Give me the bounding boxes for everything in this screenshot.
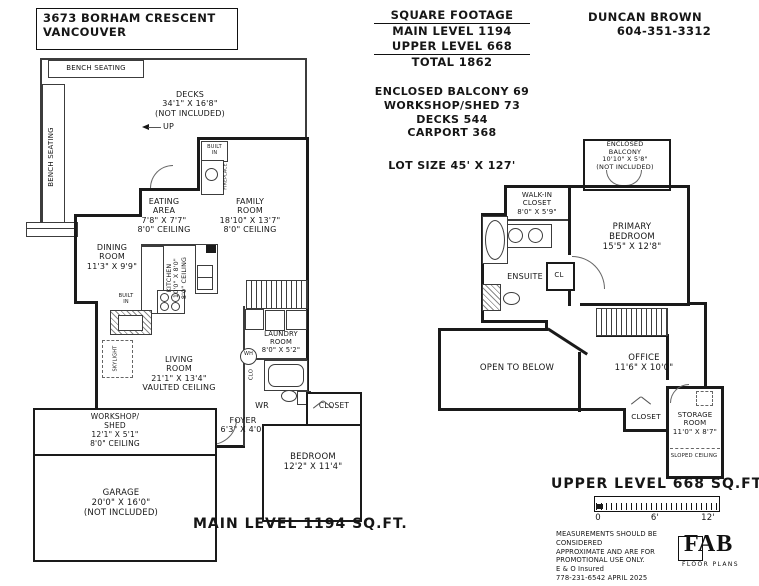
fab-logo-text: FAB — [684, 531, 733, 558]
washer — [265, 310, 285, 331]
wall-segment — [481, 320, 547, 323]
cabinet-box — [696, 391, 713, 406]
skylight-label: SKYLIGHT — [114, 343, 121, 375]
room-label-enclosed-balcony: ENCLOSED BALCONY 10'10" X 5'8" (NOT INCL… — [585, 141, 665, 172]
room-label-laundry-room: LAUNDRY ROOM 8'0" X 5'2" — [250, 330, 312, 354]
water-heater-label: WH — [240, 352, 257, 358]
sloped-ceiling-label: SLOPED CEILING — [668, 453, 720, 459]
room-label-decks: DECKS 34'1" X 16'8" (NOT INCLUDED) — [150, 90, 230, 118]
room-label-kitchen: KITCHEN 10'0" X 8'0" 8'0" CEILING — [166, 246, 190, 310]
wall-segment — [197, 137, 200, 191]
address-line2: VANCOUVER — [43, 25, 231, 39]
room-label-primary-bedroom: PRIMARY BEDROOM 15'5" X 12'8" — [586, 222, 678, 252]
kitchen-sink — [197, 277, 213, 290]
room-label-family-room: FAMILY ROOM 18'10" X 13'7" 8'0" CEILING — [208, 197, 292, 235]
wall-segment — [547, 327, 588, 355]
vanity-sink — [508, 228, 523, 243]
wall-segment — [74, 214, 77, 304]
extra-area-line: DECKS 544 — [356, 113, 548, 127]
bifold-door — [631, 396, 641, 404]
disclaimer-line: 778-231-6542 APRIL 2025 — [556, 574, 676, 583]
wall-segment — [197, 137, 309, 140]
wall-segment — [568, 290, 571, 306]
bathtub-upper-inner — [485, 220, 505, 260]
shower — [482, 284, 501, 311]
wall-segment — [578, 352, 581, 412]
room-label-storage-room: STORAGE ROOM 11'0" X 8'7" — [668, 411, 722, 436]
closet-clo-label: CLO — [249, 367, 256, 383]
room-label-workshop: WORKSHOP/ SHED 12'1" X 5'1" 8'0" CEILING — [40, 413, 190, 448]
stairs-up-label: UP — [163, 122, 183, 131]
wall-segment — [704, 302, 707, 389]
disclaimer-block: MEASUREMENTS SHOULD BE CONSIDERED APPROX… — [556, 530, 676, 583]
door-arc — [572, 256, 605, 289]
room-label-office: OFFICE 11'6" X 10'0" — [600, 353, 688, 373]
agent-name: DUNCAN BROWN — [563, 10, 727, 24]
wall-segment — [504, 219, 570, 221]
vanity-sink — [528, 228, 543, 243]
address-line1: 3673 BORHAM CRESCENT — [43, 11, 231, 25]
room-label-garage: GARAGE 20'0" X 16'0" (NOT INCLUDED) — [46, 488, 196, 518]
wall-segment — [305, 58, 307, 140]
room-label-wr: WR — [250, 401, 274, 410]
scale-label-0: 0 — [592, 513, 604, 523]
up-arrow-line — [148, 127, 161, 128]
square-footage-block: SQUARE FOOTAGE MAIN LEVEL 1194 UPPER LEV… — [374, 8, 530, 70]
extra-area-line: WORKSHOP/SHED 73 — [356, 99, 548, 113]
room-label-walk-in-closet: WALK-IN CLOSET 8'0" X 5'9" — [506, 191, 568, 216]
agent-phone: 604-351-3312 — [601, 24, 727, 38]
room-label-dining-room: DINING ROOM 11'3" X 9'9" — [80, 243, 144, 271]
room-label-open-to-below: OPEN TO BELOW — [452, 363, 582, 373]
bedroom-box — [262, 424, 362, 522]
bathtub-main-inner — [268, 364, 304, 387]
extra-areas-block: ENCLOSED BALCONY 69 WORKSHOP/SHED 73 DEC… — [356, 85, 548, 140]
sloped-ceiling-line — [670, 448, 720, 450]
room-label-ensuite: ENSUITE — [502, 272, 548, 281]
room-label-cl: CL — [548, 271, 570, 279]
built-in-fireplace-label: BUILT IN — [201, 144, 228, 156]
scale-ticks — [596, 503, 717, 510]
fireplace-flue — [205, 168, 218, 181]
main-level-label: MAIN LEVEL 1194 SQ.FT. — [193, 516, 383, 532]
wall-segment — [623, 429, 669, 432]
wall-segment — [580, 303, 690, 306]
disclaimer-line: E & O Insured — [556, 565, 676, 574]
wall-segment — [568, 185, 690, 188]
contact-block: DUNCAN BROWN 604-351-3312 — [563, 10, 727, 39]
wall-segment — [26, 228, 76, 229]
toilet-main — [281, 390, 297, 402]
bifold-door — [641, 396, 651, 404]
wall-segment — [568, 185, 571, 255]
toilet-upper — [503, 292, 520, 305]
wall-segment — [438, 408, 626, 411]
room-label-living-room: LIVING ROOM 21'1" X 13'4" VAULTED CEILIN… — [138, 355, 220, 393]
fireplace-label: FIREPLACE — [224, 159, 231, 195]
room-label-eating-area: EATING AREA 7'8" X 7'7" 8'0" CEILING — [130, 197, 198, 235]
upper-level-label: UPPER LEVEL 668 SQ.FT. — [551, 476, 759, 492]
disclaimer-line: APPROXIMATE AND ARE FOR — [556, 548, 676, 557]
disclaimer-line: MEASUREMENTS SHOULD BE CONSIDERED — [556, 530, 676, 548]
dryer — [286, 310, 307, 330]
lot-size: LOT SIZE 45' X 127' — [356, 159, 548, 173]
fridge — [206, 245, 216, 253]
wall-segment — [438, 328, 548, 331]
laundry-sink — [245, 309, 264, 330]
upper-level-sqft: UPPER LEVEL 668 — [374, 39, 530, 55]
scale-label-6: 6' — [648, 513, 662, 523]
wall-segment — [139, 188, 200, 191]
wall-segment — [687, 185, 690, 305]
extra-area-line: CARPORT 368 — [356, 126, 548, 140]
stairs-upper — [596, 308, 668, 336]
door-arc — [150, 165, 173, 188]
wall-segment — [95, 301, 98, 411]
total-sqft: TOTAL 1862 — [374, 55, 530, 69]
wall-segment — [504, 185, 570, 188]
stairs-main — [246, 280, 308, 309]
main-level-sqft: MAIN LEVEL 1194 — [374, 24, 530, 38]
built-in-dining-label: BUILT IN — [112, 293, 140, 305]
scale-zero-block — [596, 504, 603, 509]
wall-segment — [438, 328, 441, 411]
window-bay — [26, 222, 78, 237]
square-footage-title: SQUARE FOOTAGE — [374, 8, 530, 24]
bench-seating-top-label: BENCH SEATING — [48, 64, 144, 72]
floor-plan-page: 3673 BORHAM CRESCENT VANCOUVER SQUARE FO… — [0, 0, 759, 586]
room-label-closet-upper: CLOSET — [624, 413, 668, 422]
scale-label-12: 12' — [700, 513, 716, 523]
room-label-bedroom: BEDROOM 12'2" X 11'4" — [270, 452, 356, 472]
wall-segment — [545, 320, 548, 331]
address-box: 3673 BORHAM CRESCENT VANCOUVER — [36, 8, 238, 50]
disclaimer-line: PROMOTIONAL USE ONLY. — [556, 556, 676, 565]
wall-segment — [306, 137, 309, 395]
bench-seating-left-label: BENCH SEATING — [47, 117, 57, 197]
extra-area-line: ENCLOSED BALCONY 69 — [356, 85, 548, 99]
fab-logo-tagline: FLOOR PLANS — [682, 561, 739, 568]
dining-built-in-inner — [118, 315, 143, 331]
